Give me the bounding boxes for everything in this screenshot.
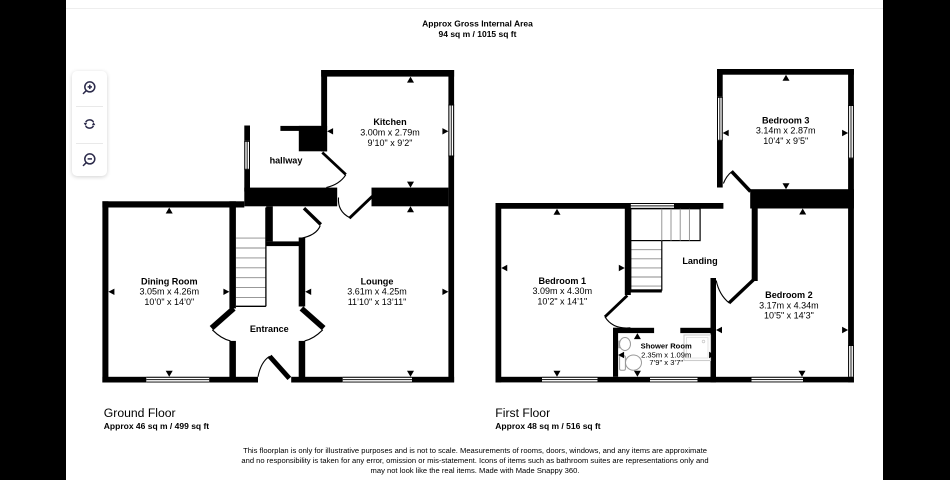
svg-text:7’9" x 3’7": 7’9" x 3’7" bbox=[649, 358, 683, 367]
svg-text:10’2" x 14’1": 10’2" x 14’1" bbox=[537, 296, 587, 306]
svg-text:Ground Floor: Ground Floor bbox=[104, 406, 176, 420]
svg-text:10’5" x 14’3": 10’5" x 14’3" bbox=[764, 311, 814, 321]
svg-text:3.00m x 2.79m: 3.00m x 2.79m bbox=[360, 128, 420, 138]
svg-text:Lounge: Lounge bbox=[361, 276, 394, 286]
svg-text:hallway: hallway bbox=[270, 156, 304, 166]
svg-text:11’10" x 13’11": 11’10" x 13’11" bbox=[348, 297, 407, 307]
svg-text:Approx 46 sq m / 499 sq ft: Approx 46 sq m / 499 sq ft bbox=[104, 421, 210, 431]
svg-text:and no responsibility is taken: and no responsibility is taken for any e… bbox=[241, 456, 708, 465]
svg-text:10’4" x 9’5": 10’4" x 9’5" bbox=[763, 136, 808, 146]
svg-text:First Floor: First Floor bbox=[495, 406, 550, 420]
svg-text:Bedroom 2: Bedroom 2 bbox=[765, 290, 813, 300]
svg-text:3.09m x 4.30m: 3.09m x 4.30m bbox=[533, 286, 593, 296]
svg-text:Shower Room: Shower Room bbox=[641, 341, 692, 350]
svg-text:3.05m x 4.26m: 3.05m x 4.26m bbox=[140, 287, 200, 297]
svg-text:may not look like the real ite: may not look like the real items. Made w… bbox=[371, 466, 580, 475]
svg-text:Bedroom 1: Bedroom 1 bbox=[539, 276, 587, 286]
svg-text:10’0" x 14’0": 10’0" x 14’0" bbox=[144, 297, 194, 307]
svg-text:94 sq m / 1015 sq ft: 94 sq m / 1015 sq ft bbox=[439, 29, 517, 39]
svg-text:Dining Room: Dining Room bbox=[141, 276, 198, 286]
svg-text:3.61m x 4.25m: 3.61m x 4.25m bbox=[347, 287, 407, 297]
svg-text:Bedroom 3: Bedroom 3 bbox=[762, 115, 810, 125]
svg-text:This floorplan is only for ill: This floorplan is only for illustrative … bbox=[243, 446, 707, 455]
svg-text:3.17m x 4.34m: 3.17m x 4.34m bbox=[759, 300, 819, 310]
svg-text:Entrance: Entrance bbox=[250, 324, 289, 334]
svg-text:9’10" x 9’2": 9’10" x 9’2" bbox=[368, 138, 413, 148]
svg-text:3.14m x 2.87m: 3.14m x 2.87m bbox=[756, 126, 816, 136]
svg-text:Landing: Landing bbox=[682, 256, 717, 266]
svg-text:Approx Gross Internal Area: Approx Gross Internal Area bbox=[422, 19, 533, 29]
svg-text:Approx 48 sq m / 516 sq ft: Approx 48 sq m / 516 sq ft bbox=[495, 421, 601, 431]
svg-text:Kitchen: Kitchen bbox=[373, 117, 406, 127]
